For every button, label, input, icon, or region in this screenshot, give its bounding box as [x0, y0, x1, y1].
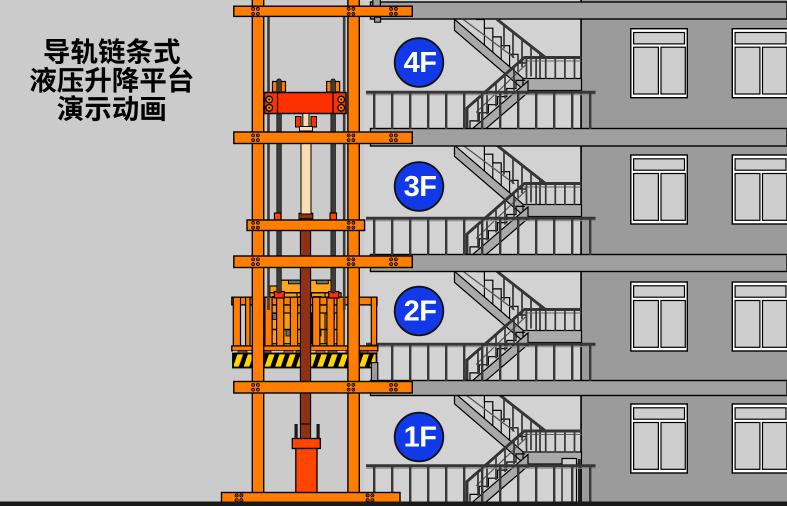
- svg-text:1F: 1F: [404, 422, 437, 454]
- svg-text:4F: 4F: [404, 47, 437, 79]
- svg-text:3F: 3F: [404, 171, 437, 203]
- svg-text:2F: 2F: [404, 296, 437, 328]
